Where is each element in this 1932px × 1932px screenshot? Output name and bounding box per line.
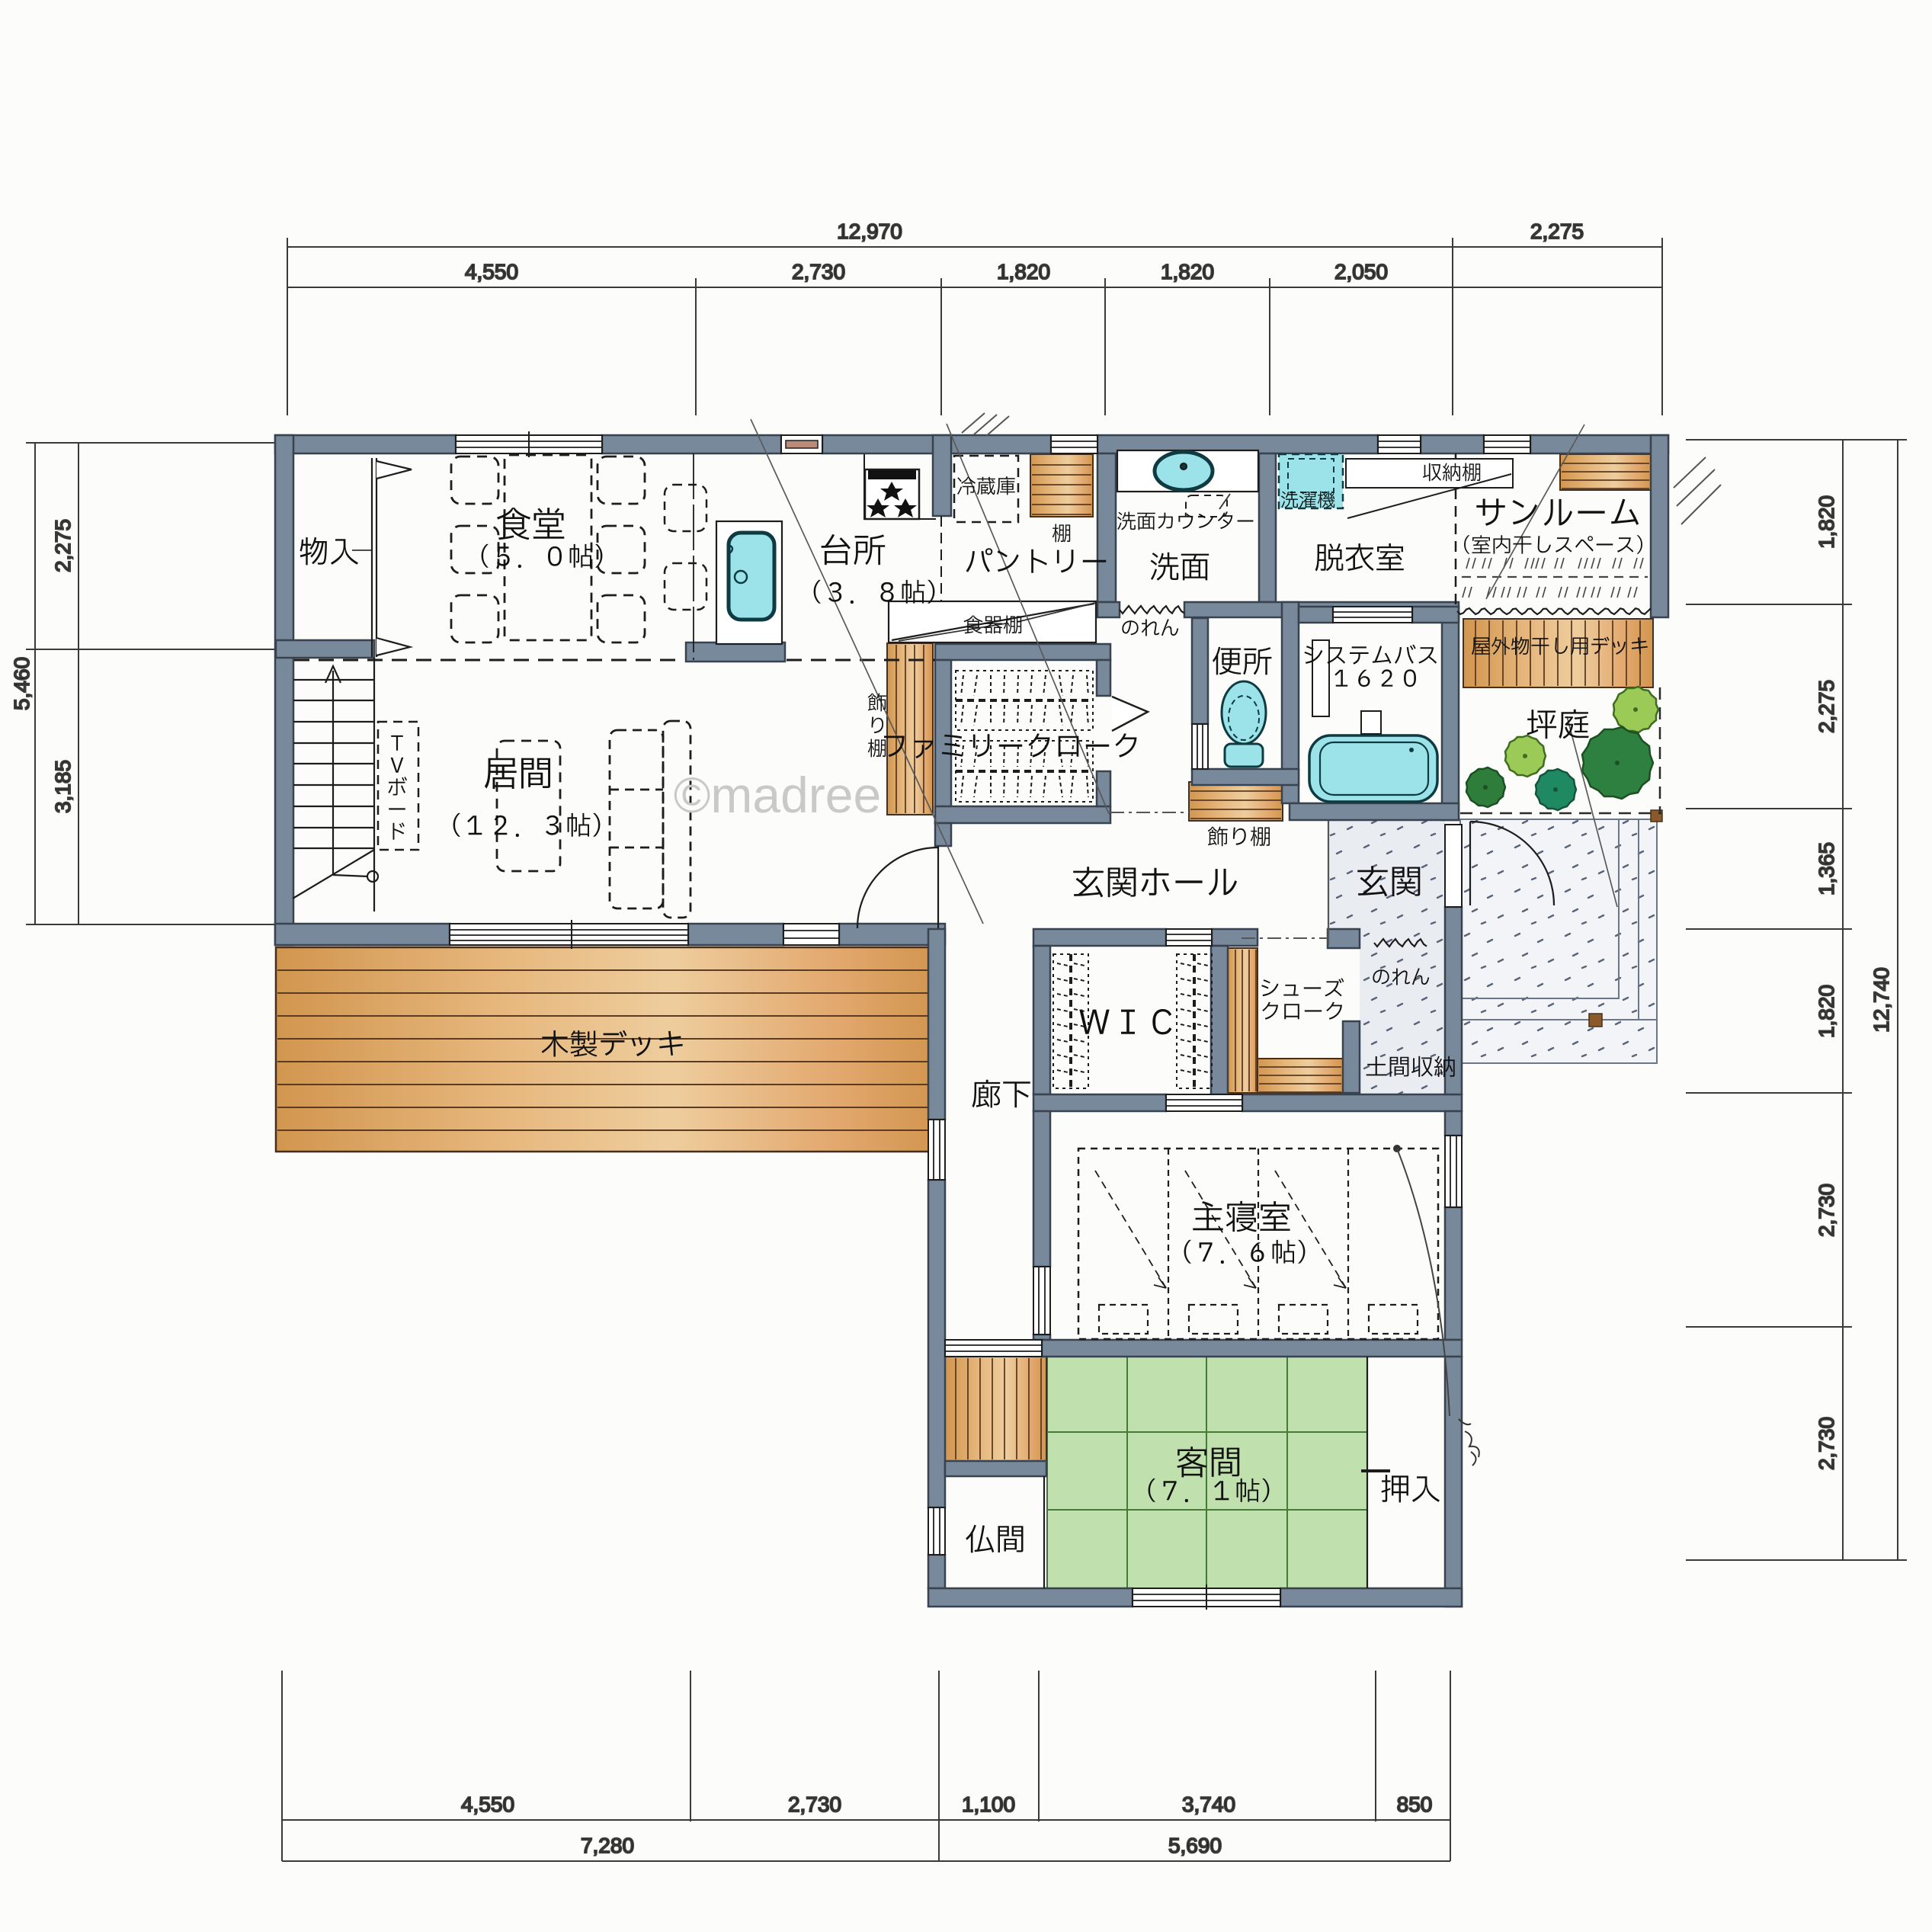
svg-text:1,820: 1,820: [1815, 985, 1838, 1038]
svg-text:850: 850: [1397, 1793, 1433, 1816]
svg-text:1,820: 1,820: [1161, 260, 1214, 284]
svg-text:12,970: 12,970: [837, 219, 902, 243]
svg-text:2,275: 2,275: [1815, 680, 1838, 733]
svg-text:2,730: 2,730: [792, 260, 845, 284]
svg-text:©madree: ©madree: [674, 767, 881, 823]
svg-text:1,365: 1,365: [1815, 842, 1838, 896]
svg-text:3,185: 3,185: [51, 760, 75, 813]
svg-text:2,275: 2,275: [1530, 219, 1584, 243]
svg-text:5,690: 5,690: [1168, 1834, 1222, 1857]
svg-text:1,820: 1,820: [1815, 495, 1838, 549]
svg-text:4,550: 4,550: [465, 260, 518, 284]
svg-text:2,275: 2,275: [51, 519, 75, 572]
svg-text:7,280: 7,280: [581, 1834, 634, 1857]
svg-text:2,730: 2,730: [1815, 1417, 1838, 1470]
svg-text:2,050: 2,050: [1334, 260, 1388, 284]
svg-text:4,550: 4,550: [461, 1793, 514, 1816]
svg-text:3,740: 3,740: [1182, 1793, 1235, 1816]
svg-text:12,740: 12,740: [1870, 967, 1893, 1033]
svg-text:2,730: 2,730: [788, 1793, 841, 1816]
svg-text:5,460: 5,460: [10, 657, 34, 710]
svg-text:2,730: 2,730: [1815, 1184, 1838, 1237]
svg-text:1,100: 1,100: [962, 1793, 1015, 1816]
svg-text:1,820: 1,820: [997, 260, 1050, 284]
